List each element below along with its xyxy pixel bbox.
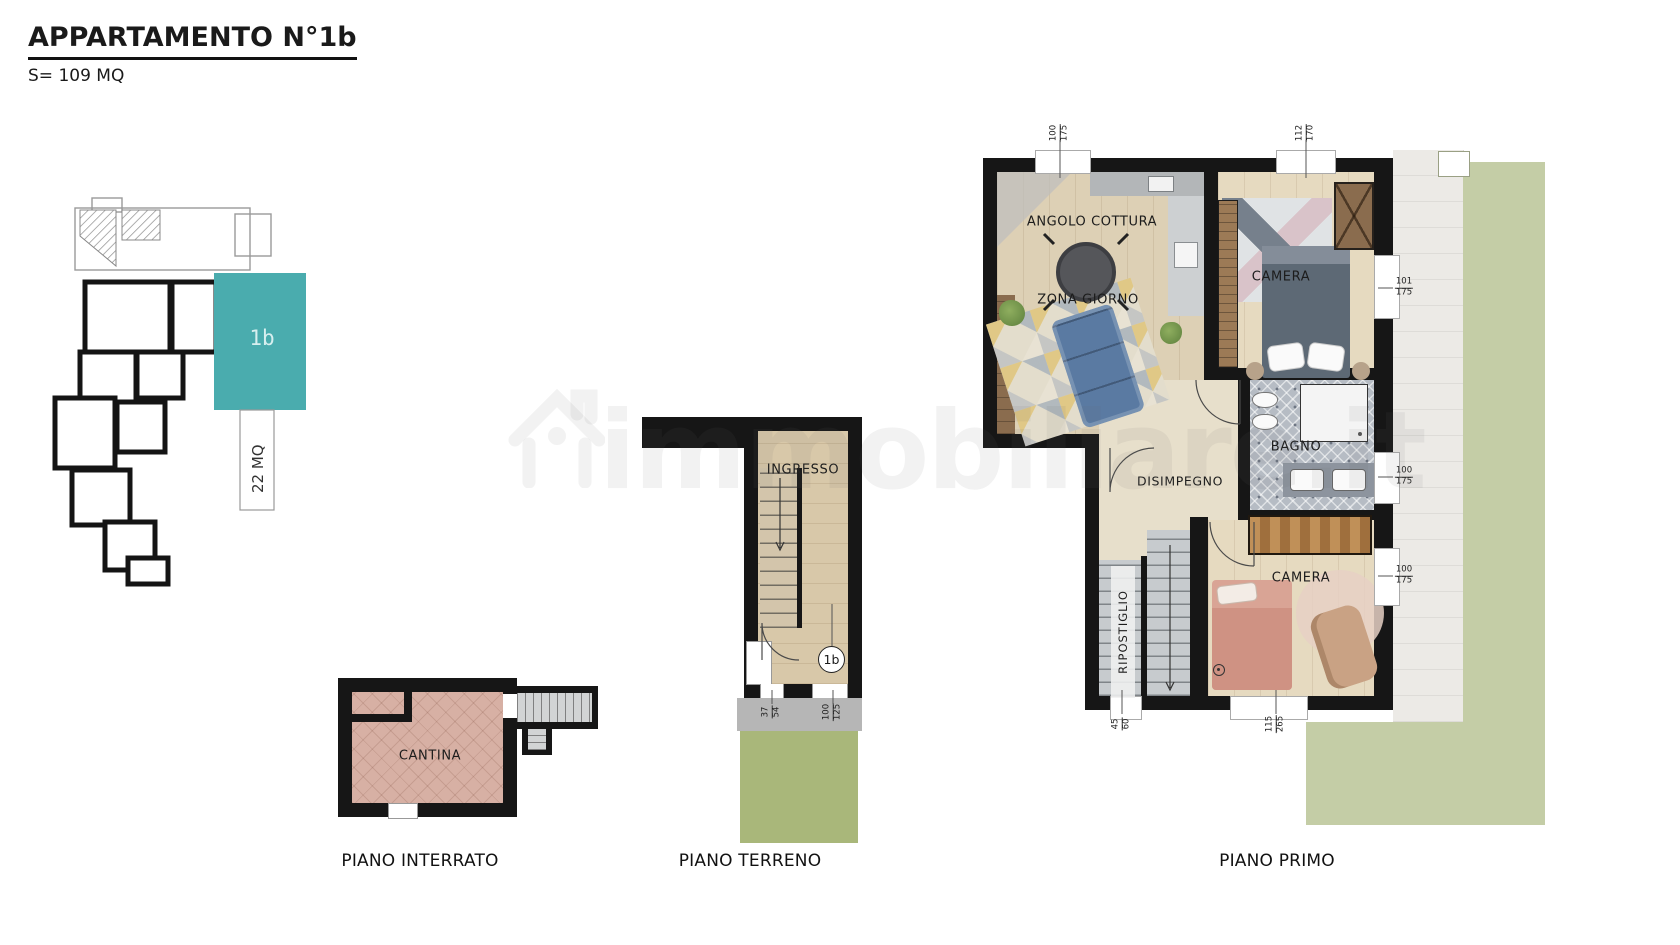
room-label-disimpegno: DISIMPEGNO [1137, 474, 1223, 489]
toilet [1252, 392, 1278, 408]
page-subtitle: S= 109 MQ [28, 66, 357, 86]
dim-terreno-window: 100125 [823, 703, 844, 721]
unit-badge-label: 1b [824, 652, 840, 667]
key-plan-roof-hatch2 [122, 210, 160, 240]
dim-window-right-bagno: 100175 [1395, 467, 1413, 488]
window-top-camera1 [1276, 150, 1336, 174]
room-label-angolo-cottura: ANGOLO COTTURA [1027, 215, 1157, 230]
interrato-stair-opening [503, 694, 517, 718]
door-bottom-ripostiglio [1110, 696, 1142, 720]
floor-label-interrato: PIANO INTERRATO [341, 851, 498, 871]
terreno-stairs [760, 468, 802, 628]
camera2-blanket [1212, 608, 1292, 690]
room-label-camera2: CAMERA [1272, 571, 1330, 586]
room-label-camera1: CAMERA [1252, 270, 1310, 285]
dim-window-top-camera1: 112170 [1296, 124, 1317, 142]
watermark-house-icon [505, 378, 605, 488]
fridge [1174, 242, 1198, 268]
camera2-pillow [1216, 582, 1258, 606]
interrato-stairs [517, 693, 592, 722]
bed-pillow-right [1306, 342, 1345, 373]
key-plan-roof-hatch [80, 210, 116, 266]
bed-pillow-left [1266, 342, 1305, 373]
unit-1b-label: 1b [249, 326, 274, 350]
primo-stairs-right-flight [1147, 530, 1190, 696]
lamp-dot [1217, 668, 1220, 671]
dim-terreno-door: 3754 [762, 706, 783, 719]
interrato-inner-wall-h [346, 714, 408, 722]
room-label-cantina: CANTINA [399, 749, 461, 764]
dim-door-ripostiglio: 4560 [1112, 718, 1133, 731]
camera2-bed [1212, 580, 1292, 690]
terrace-paving [1393, 150, 1464, 722]
ripostiglio-text: RIPOSTIGLIO [1116, 590, 1130, 674]
dim-window-top-giorno: 100175 [1050, 124, 1071, 142]
shower-drain [1358, 432, 1362, 436]
window-top-giorno [1035, 150, 1091, 174]
area-badge-label: 22 MQ [249, 444, 267, 493]
key-plan: 1b 22 MQ [40, 190, 320, 590]
disimpegno-gap [1108, 434, 1154, 448]
camera1-bed [1262, 246, 1350, 378]
floor-label-primo: PIANO PRIMO [1219, 851, 1335, 871]
floorplan-canvas: APPARTAMENTO N°1b S= 109 MQ [0, 0, 1680, 945]
room-label-ingresso: INGRESSO [767, 463, 839, 478]
plant-1 [999, 300, 1025, 326]
camera2-wardrobe [1248, 515, 1372, 555]
interrato-door [388, 803, 418, 819]
key-plan-building [55, 282, 216, 584]
interrato-stair-wall-bottom [517, 722, 597, 729]
dim-window-right-camera1: 101175 [1395, 278, 1413, 299]
terreno-door-gap [760, 684, 784, 698]
shower [1300, 384, 1368, 442]
room-label-bagno: BAGNO [1271, 440, 1322, 455]
interrato-stair-return [522, 729, 552, 755]
sink-basin-right [1332, 469, 1366, 491]
dim-window-right-camera2: 100175 [1395, 566, 1413, 587]
interrato-inner-wall-v [404, 686, 412, 722]
dim-window-bottom-camera2: 115265 [1266, 715, 1287, 733]
garden-right [1463, 162, 1545, 722]
terreno-wing-wall [642, 417, 760, 448]
camera1-wardrobe [1334, 182, 1374, 250]
kitchen-counter-top [1090, 172, 1204, 196]
terreno-closet [746, 641, 772, 685]
ceiling-lamp-symbol [1213, 664, 1225, 676]
terreno-window-gap [812, 684, 848, 698]
grass-terreno [740, 731, 858, 843]
interrato-stair-wall-top [517, 686, 597, 693]
bidet [1252, 414, 1278, 430]
room-label-zona-giorno: ZONA GIORNO [1037, 293, 1139, 308]
camera2-left-wall [1190, 517, 1208, 710]
floor-label-terreno: PIANO TERRENO [679, 851, 822, 871]
unit-badge: 1b [818, 646, 845, 673]
bedside-stool-right [1352, 362, 1370, 380]
bedside-stool-left [1246, 362, 1264, 380]
sink-basin-left [1290, 469, 1324, 491]
garden-bottom [1306, 722, 1545, 825]
camera1-closet-strip [1218, 200, 1238, 368]
page-title: APPARTAMENTO N°1b [28, 22, 357, 60]
room-label-ripostiglio: RIPOSTIGLIO [1111, 566, 1135, 698]
chimney-box [1438, 151, 1470, 177]
bagno-left-wall [1238, 380, 1250, 510]
kitchen-sink [1148, 176, 1174, 192]
cantina-floor [352, 692, 503, 803]
